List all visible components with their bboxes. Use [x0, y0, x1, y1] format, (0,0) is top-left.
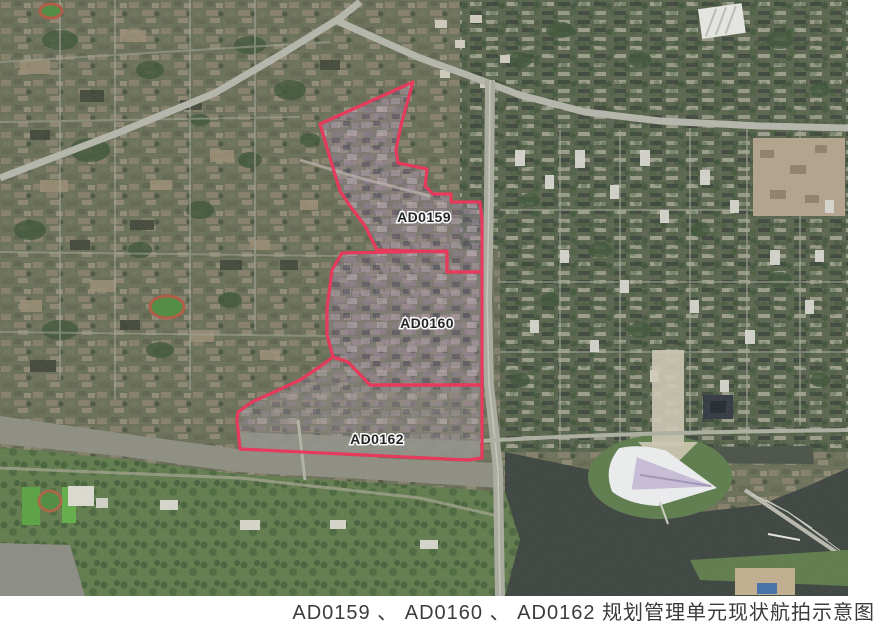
photo-grain [0, 0, 848, 596]
aerial-map: AD0159 AD0160 AD0162 [0, 0, 879, 622]
figure-page: AD0159 AD0160 AD0162 AD0159 、 AD0160 、 A… [0, 0, 879, 622]
figure-caption: AD0159 、 AD0160 、 AD0162 规划管理单元现状航拍示意图 [0, 596, 875, 622]
